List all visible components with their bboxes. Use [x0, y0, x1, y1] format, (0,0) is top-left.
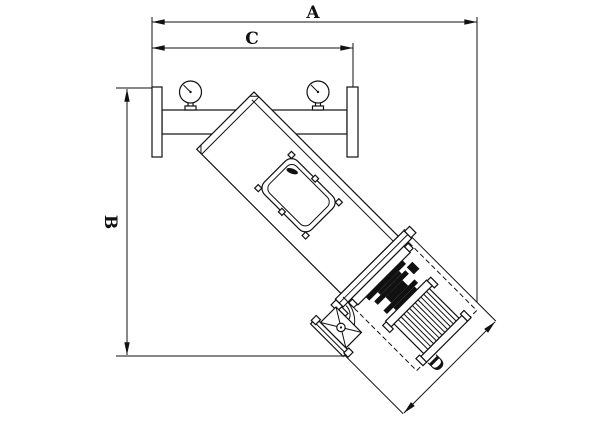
pressure-gauge-left	[180, 81, 202, 110]
pressure-gauge-right	[307, 81, 329, 110]
left-pipe-flange	[152, 87, 162, 157]
dimension-c: C	[152, 29, 353, 87]
dimension-a-label: A	[305, 3, 320, 23]
strainer-outline-drawing: A C B D	[0, 0, 605, 428]
right-pipe-flange	[347, 87, 358, 157]
technical-drawing-page: A C B D	[0, 0, 605, 428]
dimension-c-label: C	[245, 29, 259, 49]
dimension-b-label: B	[100, 215, 120, 229]
